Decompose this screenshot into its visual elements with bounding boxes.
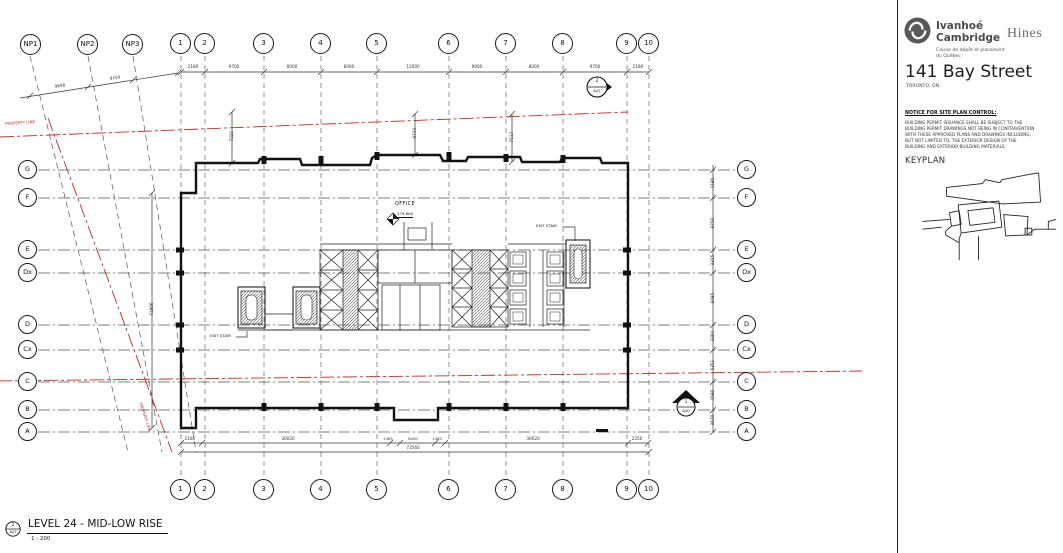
notice-body: BUILDING PERMIT ISSUANCE SHALL BE SUBJEC…	[905, 120, 1037, 149]
dim-right-8: 3670	[711, 405, 715, 435]
building-core	[238, 222, 590, 330]
exit-stair-right-label: EXIT STAIR	[536, 224, 557, 228]
dim-bottom-4: 6000	[401, 437, 425, 441]
dim-top-3: 8000	[274, 65, 310, 69]
dim-top-9: 2180	[620, 65, 656, 69]
notice-heading: NOTICE FOR SITE PLAN CONTROL:	[905, 111, 996, 116]
partner-brand-name: Hines	[1007, 26, 1042, 42]
grid-bubble-right-d: D	[737, 315, 756, 334]
grid-bubble-right-dx: Dx	[737, 263, 756, 282]
grid-bubble-bottom-2: 2	[194, 479, 215, 500]
grid-bubble-top-2: 2	[194, 33, 215, 54]
grid-bubble-top-np1: NP1	[20, 34, 41, 55]
grid-bubble-left-d: D	[18, 315, 37, 334]
grid-bubble-top-np2: NP2	[77, 34, 98, 55]
grid-bubble-bottom-3: 3	[253, 479, 274, 500]
grid-bubble-right-e: E	[737, 240, 756, 259]
dim-top-6: 9000	[459, 65, 495, 69]
dim-bottom-6: 30020	[518, 437, 548, 441]
keyplan-label: KEYPLAN	[905, 156, 945, 166]
grid-bubble-bottom-5: 5	[366, 479, 387, 500]
exit-stair-left-label: EXIT STAIR	[210, 334, 231, 338]
elevator-cabs	[510, 250, 564, 327]
grid-bubble-left-cx: Cx	[18, 340, 37, 359]
dim-right-4: 8485	[711, 283, 715, 313]
dim-bottom-total: 73560	[395, 446, 431, 450]
dim-top-4: 8000	[331, 65, 367, 69]
dim-right-5: 3364	[711, 321, 715, 351]
brand-name-line1: Ivanhoé	[936, 20, 983, 32]
grid-bubble-left-b: B	[18, 400, 37, 419]
dim-interior-1: 7221	[230, 121, 234, 151]
ivanhoe-cambridge-logo-icon	[904, 17, 931, 44]
grid-bubble-bottom-7: 7	[495, 479, 516, 500]
exit-stair-left-shape	[238, 287, 320, 330]
grid-bubble-bottom-6: 6	[438, 479, 459, 500]
property-lines	[0, 112, 862, 452]
grid-bubble-top-4: 4	[310, 33, 331, 54]
grid-bubble-right-a: A	[737, 422, 756, 441]
grid-bubble-right-f: F	[737, 188, 756, 207]
grid-bubble-bottom-4: 4	[310, 479, 331, 500]
dim-top-8: 9700	[577, 65, 613, 69]
grid-bubble-bottom-9: 9	[616, 479, 637, 500]
dim-bottom-1: 2180	[175, 437, 205, 441]
dim-interior-4: 41806	[150, 294, 154, 324]
grid-bubble-left-f: F	[18, 188, 37, 207]
grid-bubble-top-10: 10	[638, 33, 659, 54]
grid-bubble-right-b: B	[737, 400, 756, 419]
keyplan-drawing	[903, 171, 1058, 296]
floor-plan-canvas	[0, 0, 897, 553]
section-marker-a-sheet: A27	[589, 89, 605, 93]
grid-bubble-top-8: 8	[552, 33, 573, 54]
dim-bottom-7: 2250	[622, 437, 652, 441]
grid-bubble-top-1: 1	[170, 33, 191, 54]
dim-top-2: 9700	[216, 65, 252, 69]
grid-lines-np	[30, 56, 196, 452]
section-marker-b-number: 1	[679, 401, 693, 406]
dim-bottom-2: 30020	[273, 437, 303, 441]
grid-bubble-bottom-8: 8	[552, 479, 573, 500]
grid-bubble-top-5: 5	[366, 33, 387, 54]
caisse-line2: du Québec	[936, 54, 961, 59]
grid-bubble-top-3: 3	[253, 33, 274, 54]
dim-top-1: 2180	[175, 65, 211, 69]
grid-bubble-top-np3: NP3	[122, 34, 143, 55]
grid-bubble-bottom-10: 10	[638, 479, 659, 500]
exit-stair-right-shape	[566, 240, 590, 288]
grid-bubble-top-6: 6	[438, 33, 459, 54]
grid-bubble-left-g: G	[18, 160, 37, 179]
grid-bubble-left-a: A	[18, 422, 37, 441]
grid-bubble-right-cx: Cx	[737, 340, 756, 359]
dimension-lines	[20, 69, 716, 455]
drawing-sheet: { "titleblock": { "brand_line1": "Ivanho…	[0, 0, 1063, 553]
dim-right-1: 4180	[711, 168, 715, 198]
project-title: 141 Bay Street	[905, 62, 1032, 82]
grid-bubble-right-g: G	[737, 160, 756, 179]
grid-bubble-right-c: C	[737, 372, 756, 391]
dim-bottom-3: 1485	[376, 437, 400, 441]
view-callout-number: 2	[6, 523, 20, 527]
titleblock-divider	[897, 0, 898, 553]
view-callout-sheet: A27	[5, 531, 21, 535]
grid-lines-horizontal	[38, 170, 736, 432]
dim-right-2: 8750	[711, 208, 715, 238]
grid-bubble-left-e: E	[18, 240, 37, 259]
brand-name-line2: Cambridge	[936, 32, 1000, 44]
section-marker-a-number: 2	[590, 80, 604, 85]
section-marker-b-sheet: A40	[678, 409, 694, 413]
dim-right-6: 5351	[711, 350, 715, 380]
dim-top-7: 8000	[516, 65, 552, 69]
office-level-value: 179.800	[397, 212, 413, 218]
dim-interior-2: 9744	[413, 118, 417, 148]
room-label-office: OFFICE	[385, 202, 425, 207]
dim-bottom-5: 1485	[425, 437, 449, 441]
project-location: TORONTO, ON	[906, 84, 939, 89]
dim-top-5: 12000	[395, 65, 431, 69]
grid-bubble-top-9: 9	[616, 33, 637, 54]
grid-bubble-left-c: C	[18, 372, 37, 391]
grid-bubble-top-7: 7	[495, 33, 516, 54]
dim-interior-3: 7117	[510, 122, 514, 152]
grid-bubble-left-dx: Dx	[18, 263, 37, 282]
grid-bubble-bottom-1: 1	[170, 479, 191, 500]
dim-right-3: 3325	[711, 245, 715, 275]
caisse-line1: Caisse de dépôt et placement	[936, 48, 1005, 53]
